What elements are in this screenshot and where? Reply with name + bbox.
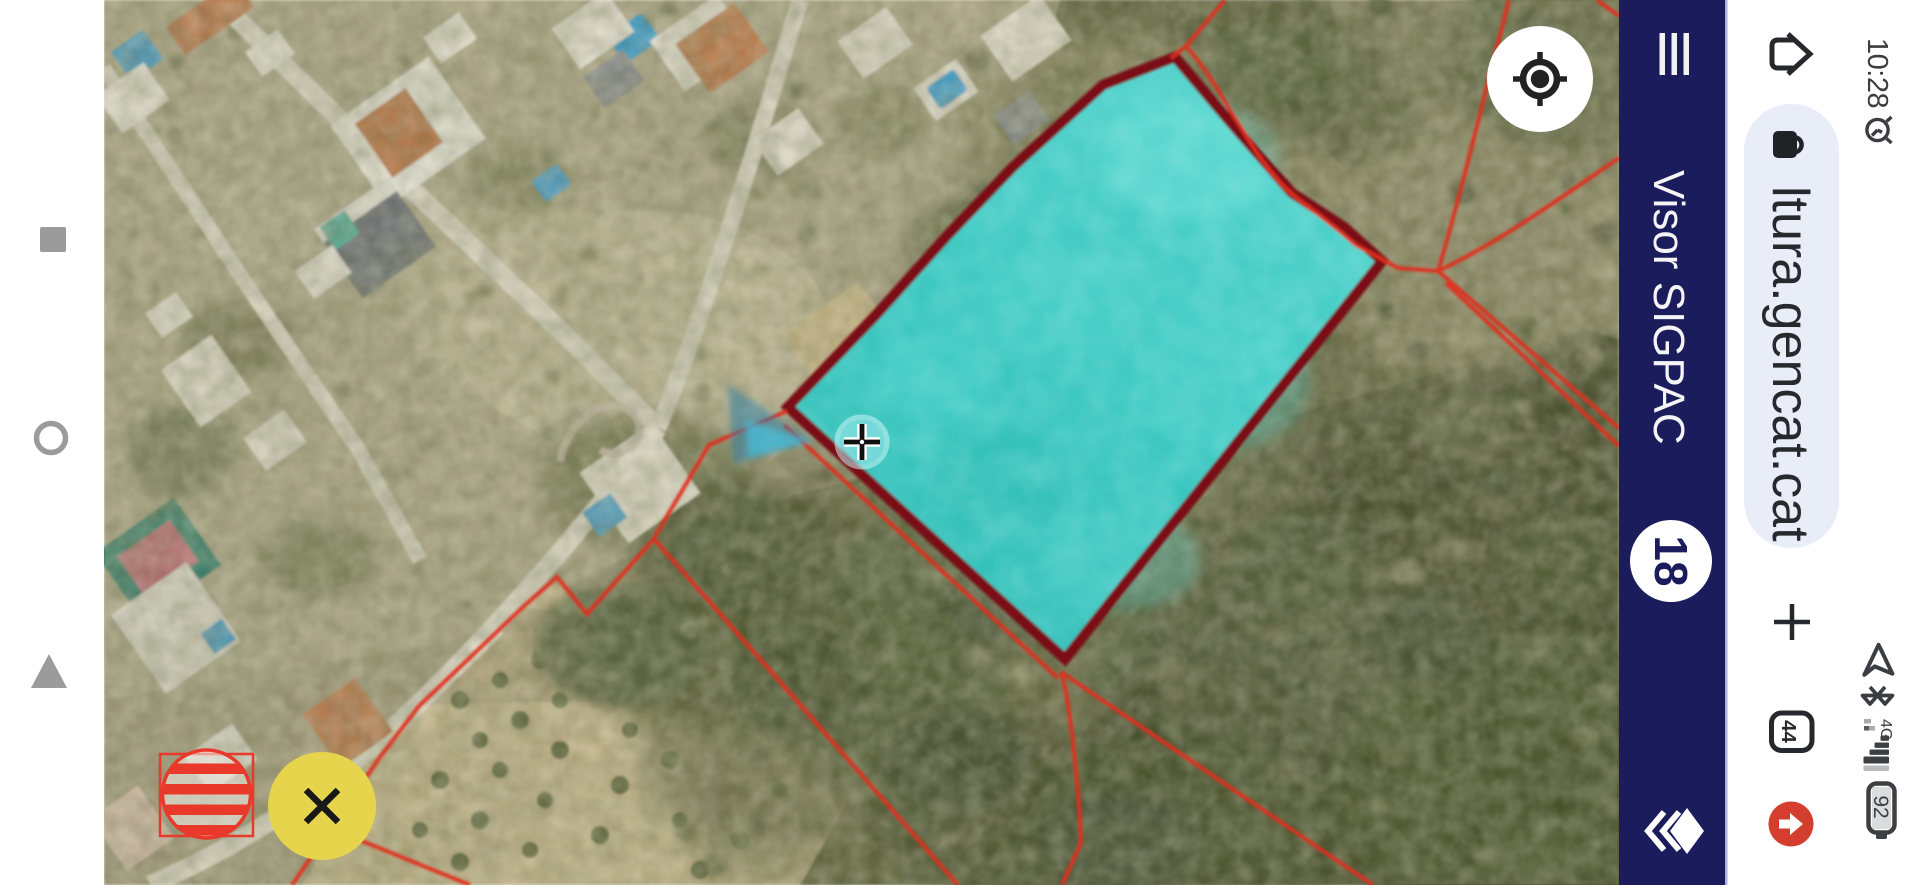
svg-text:10:28: 10:28	[1861, 38, 1893, 108]
svg-text:ltura.gencat.cat: ltura.gencat.cat	[1761, 186, 1819, 542]
svg-text:44: 44	[1777, 720, 1800, 743]
svg-text:Visor SIGPAC: Visor SIGPAC	[1644, 170, 1693, 445]
svg-text:18: 18	[1645, 535, 1697, 586]
svg-text:92: 92	[1869, 795, 1892, 818]
